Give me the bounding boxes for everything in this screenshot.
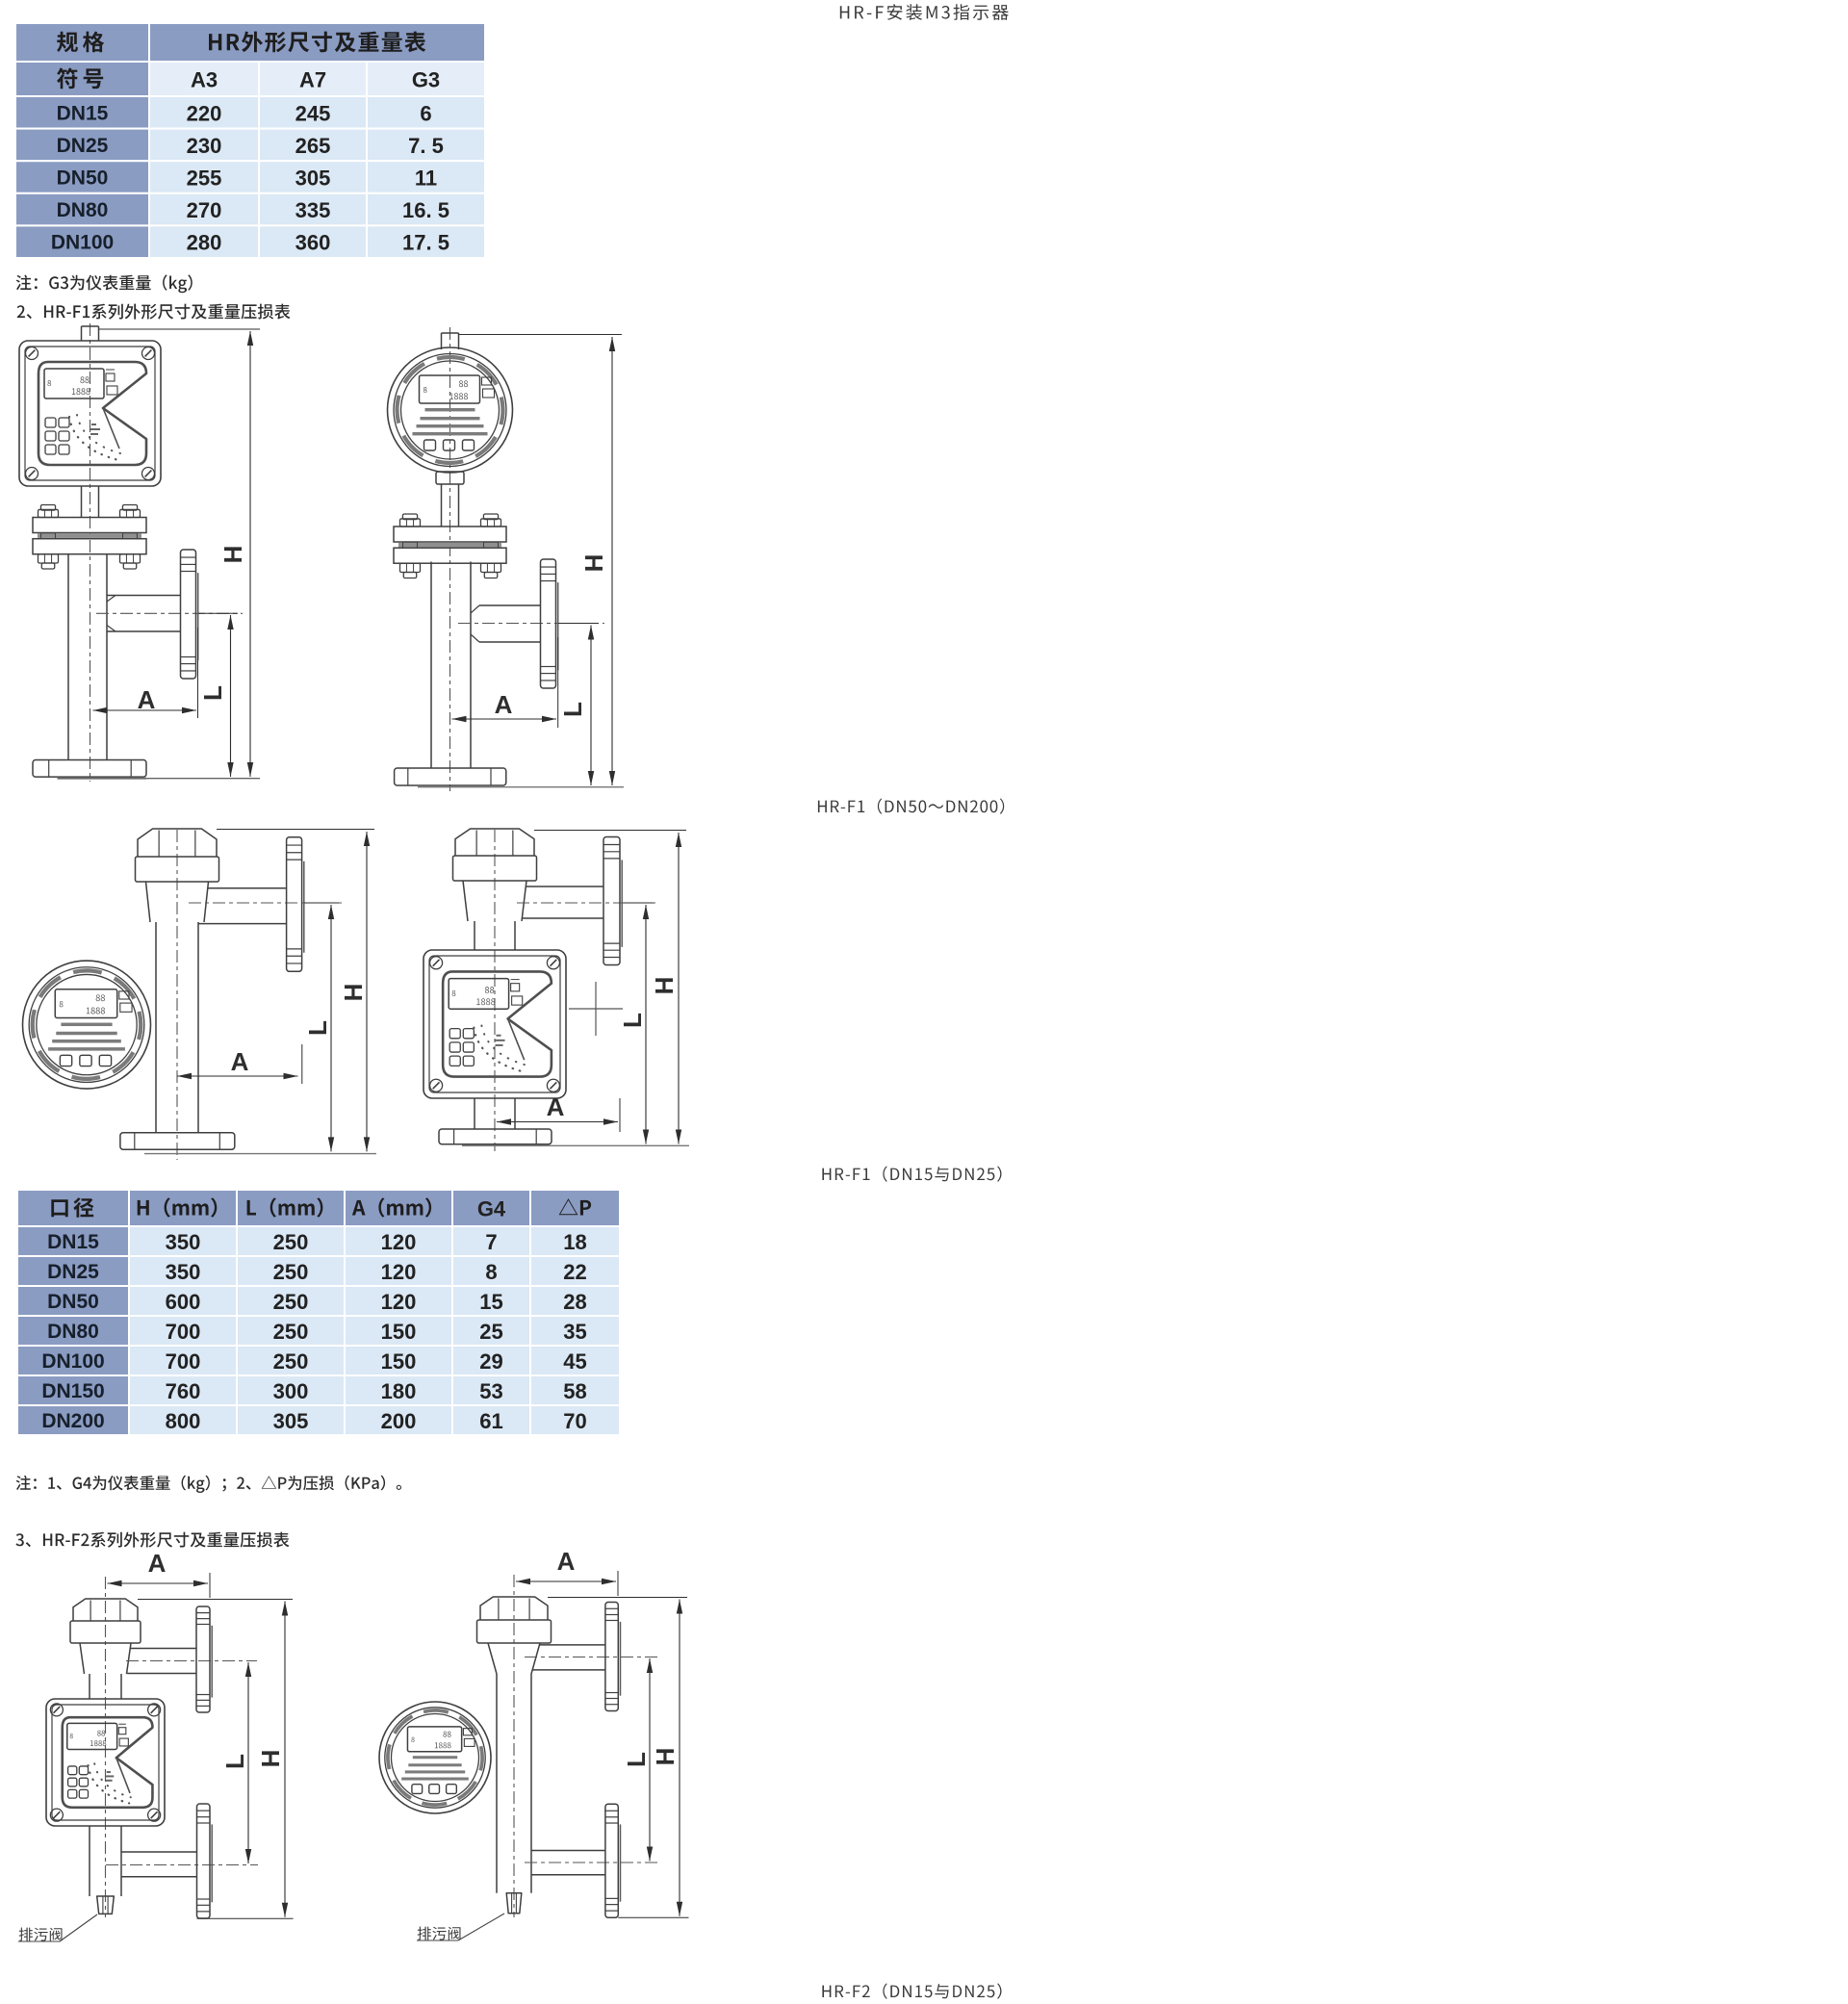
svg-text:L: L [622, 1752, 651, 1767]
svg-text:L: L [558, 702, 587, 717]
svg-text:L: L [220, 1754, 249, 1769]
svg-text:200: 200 [381, 1409, 417, 1433]
svg-text:350: 350 [166, 1230, 201, 1254]
svg-text:335: 335 [295, 198, 331, 222]
svg-text:L: L [198, 685, 227, 701]
svg-text:7. 5: 7. 5 [408, 134, 444, 158]
svg-text:120: 120 [381, 1290, 417, 1314]
svg-text:H: H [650, 977, 679, 995]
svg-text:22: 22 [563, 1260, 586, 1284]
svg-text:250: 250 [273, 1260, 309, 1284]
svg-text:DN200: DN200 [41, 1410, 104, 1432]
svg-text:DN50: DN50 [57, 167, 109, 190]
svg-text:230: 230 [187, 134, 222, 158]
svg-text:255: 255 [187, 167, 222, 191]
svg-text:11: 11 [415, 167, 437, 191]
svg-text:A: A [148, 1549, 167, 1578]
svg-text:61: 61 [479, 1409, 502, 1433]
svg-text:A7: A7 [299, 68, 326, 92]
svg-text:150: 150 [381, 1349, 417, 1374]
svg-text:800: 800 [166, 1409, 201, 1433]
svg-text:G4: G4 [477, 1197, 506, 1221]
svg-text:760: 760 [166, 1379, 201, 1403]
svg-text:H: H [339, 984, 368, 1002]
svg-text:DN15: DN15 [47, 1231, 99, 1253]
svg-text:L: L [618, 1013, 647, 1028]
svg-text:A: A [547, 1092, 565, 1121]
svg-text:DN80: DN80 [47, 1321, 99, 1343]
svg-text:H: H [579, 554, 608, 573]
svg-text:A: A [231, 1047, 249, 1076]
svg-text:15: 15 [479, 1290, 502, 1314]
svg-text:H: H [218, 546, 247, 564]
svg-text:150: 150 [381, 1320, 417, 1344]
svg-text:28: 28 [563, 1290, 586, 1314]
svg-text:7: 7 [485, 1230, 497, 1254]
svg-text:280: 280 [187, 231, 222, 255]
svg-text:70: 70 [563, 1409, 586, 1433]
svg-text:DN25: DN25 [47, 1261, 99, 1283]
svg-text:A: A [495, 690, 513, 719]
svg-text:DN15: DN15 [57, 102, 109, 124]
svg-text:220: 220 [187, 101, 222, 125]
svg-text:265: 265 [295, 134, 331, 158]
svg-text:L: L [303, 1020, 332, 1036]
svg-text:700: 700 [166, 1320, 201, 1344]
svg-text:8: 8 [485, 1260, 497, 1284]
svg-text:DN50: DN50 [47, 1291, 99, 1313]
svg-text:300: 300 [273, 1379, 309, 1403]
svg-text:53: 53 [479, 1379, 502, 1403]
svg-text:305: 305 [273, 1409, 309, 1433]
svg-text:DN150: DN150 [41, 1380, 104, 1402]
svg-text:120: 120 [381, 1260, 417, 1284]
svg-text:DN25: DN25 [57, 135, 109, 157]
svg-text:180: 180 [381, 1379, 417, 1403]
svg-text:DN100: DN100 [41, 1350, 104, 1373]
svg-text:250: 250 [273, 1230, 309, 1254]
svg-text:35: 35 [563, 1320, 586, 1344]
svg-text:45: 45 [563, 1349, 586, 1374]
svg-text:G3: G3 [412, 68, 440, 92]
svg-text:250: 250 [273, 1349, 309, 1374]
svg-text:250: 250 [273, 1290, 309, 1314]
svg-text:600: 600 [166, 1290, 201, 1314]
svg-text:350: 350 [166, 1260, 201, 1284]
svg-text:H: H [651, 1748, 680, 1766]
svg-text:245: 245 [295, 101, 331, 125]
svg-text:A: A [138, 685, 156, 714]
svg-text:16. 5: 16. 5 [402, 198, 449, 222]
svg-text:A: A [557, 1547, 576, 1576]
svg-text:A3: A3 [191, 68, 218, 92]
svg-text:250: 250 [273, 1320, 309, 1344]
svg-text:305: 305 [295, 167, 331, 191]
svg-text:17. 5: 17. 5 [402, 231, 449, 255]
svg-text:700: 700 [166, 1349, 201, 1374]
svg-text:DN100: DN100 [51, 232, 114, 254]
svg-text:270: 270 [187, 198, 222, 222]
svg-text:25: 25 [479, 1320, 502, 1344]
svg-text:6: 6 [420, 101, 431, 125]
svg-text:58: 58 [563, 1379, 586, 1403]
svg-text:120: 120 [381, 1230, 417, 1254]
svg-text:DN80: DN80 [57, 199, 109, 221]
svg-text:29: 29 [479, 1349, 502, 1374]
svg-text:360: 360 [295, 231, 331, 255]
svg-text:18: 18 [563, 1230, 586, 1254]
svg-text:H: H [256, 1750, 285, 1768]
